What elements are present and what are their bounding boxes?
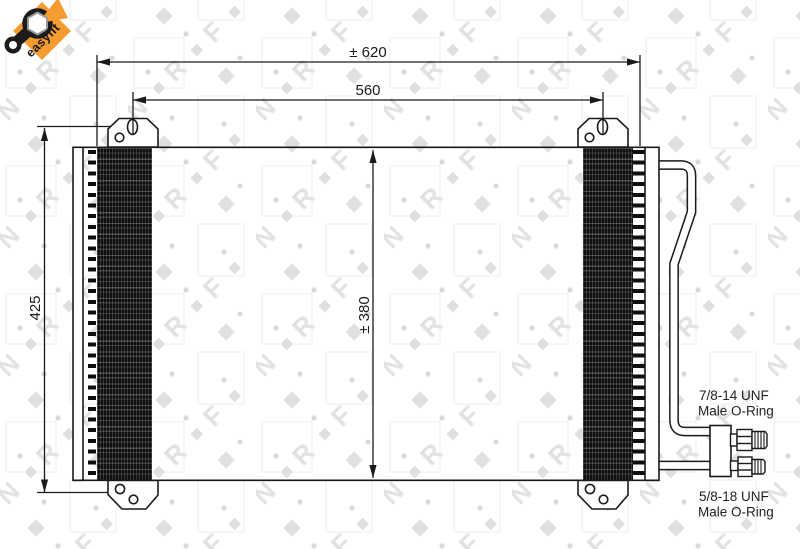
drawing-linework: ± 620 560 425 ± 380 7/8-14 UNF [0,0,800,549]
mounting-bracket-bottom-right [578,481,628,510]
fitting-upper [731,430,768,451]
core-height-label: ± 380 [356,296,373,333]
arrowhead [590,96,603,103]
mounting-width-label: 560 [355,82,380,99]
easyfit-badge: easyfit [0,0,110,80]
arrowhead [41,480,48,493]
fitting-lower-thread-label: 5/8-18 UNF [699,489,769,504]
connector-block [710,426,731,477]
left-side-plate [73,147,83,480]
overall-width-label: ± 620 [349,44,386,61]
arrowhead [369,150,376,163]
mounting-bracket-bottom-left [108,481,158,510]
fitting-upper-type-label: Male O-Ring [698,404,774,419]
fitting-lower-type-label: Male O-Ring [698,505,774,520]
arrowhead [369,465,376,478]
arrowhead [133,96,146,103]
arrowhead [627,58,640,65]
fitting-upper-thread-label: 7/8-14 UNF [699,388,769,403]
condenser-technical-drawing: N R F [0,0,800,549]
arrowhead [41,128,48,141]
right-side-plate [645,147,659,480]
fitting-lower [731,457,766,477]
overall-height-label: 425 [27,295,44,320]
